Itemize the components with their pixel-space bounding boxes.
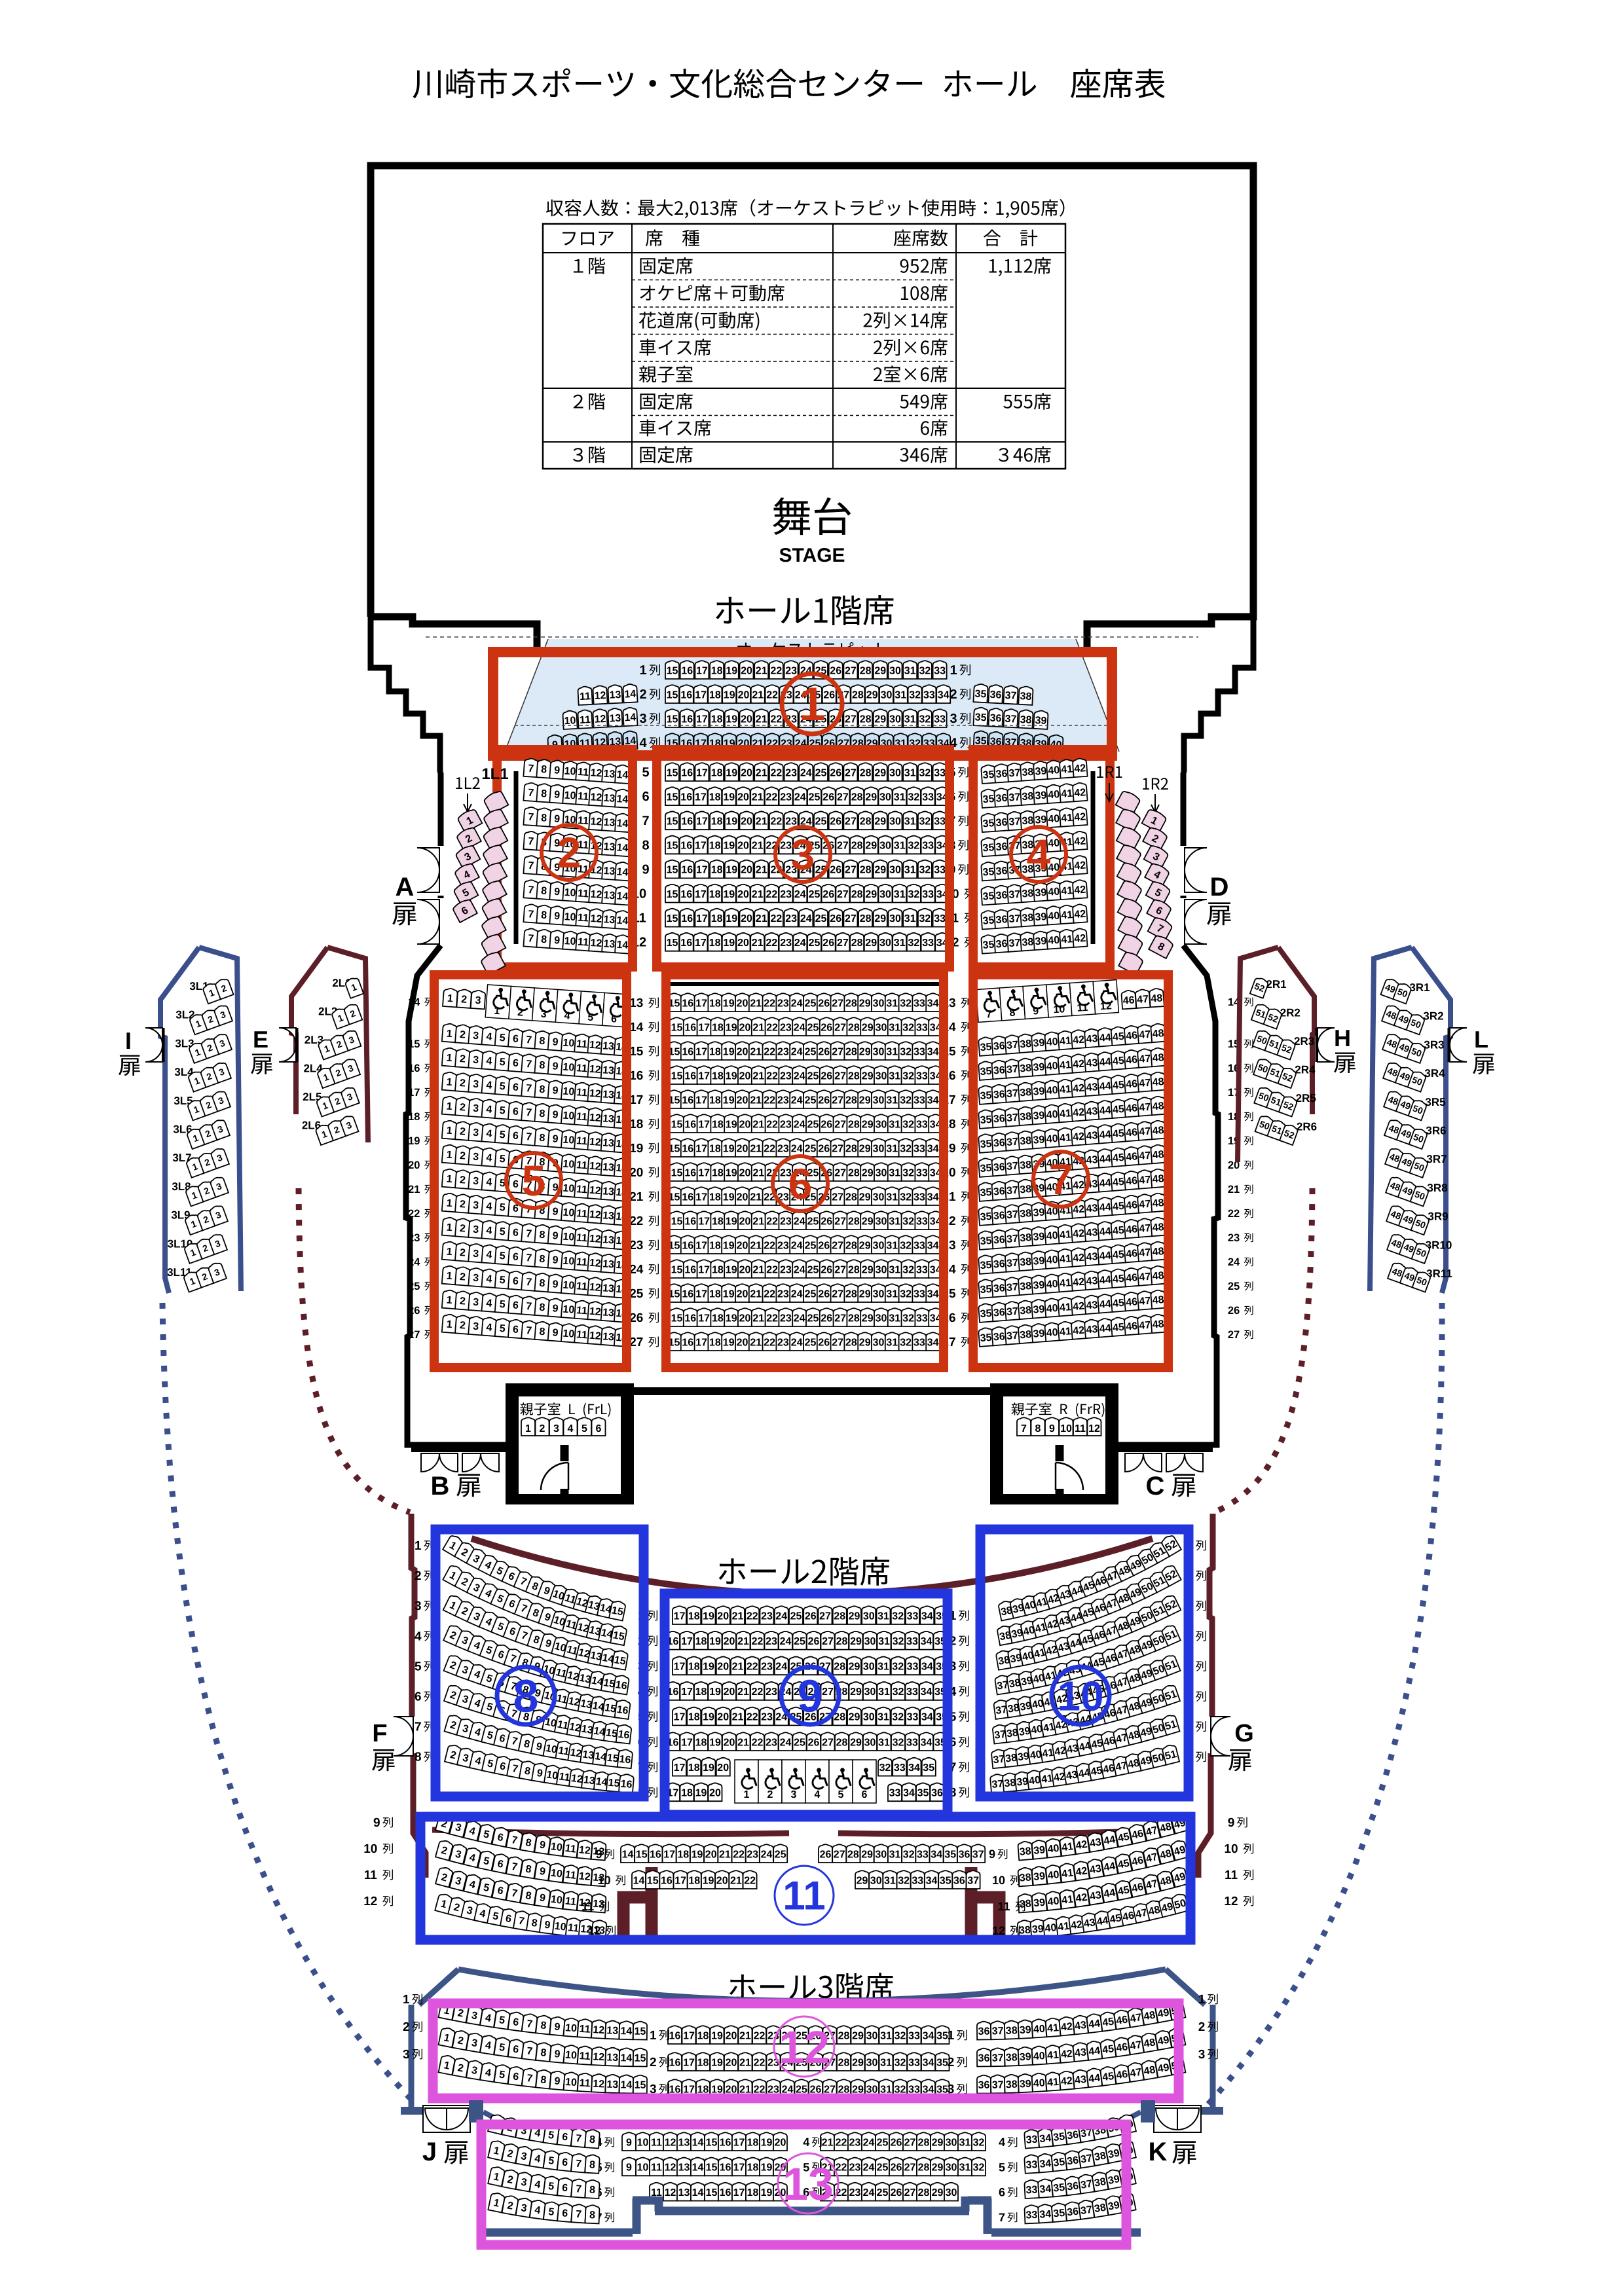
svg-text:26: 26: [818, 1288, 830, 1300]
svg-text:20: 20: [737, 1337, 748, 1348]
svg-text:14: 14: [633, 1875, 645, 1886]
svg-text:16: 16: [684, 1313, 696, 1324]
svg-text:33: 33: [916, 1167, 928, 1178]
svg-text:23: 23: [777, 1337, 789, 1348]
svg-text:15: 15: [706, 2162, 718, 2174]
svg-text:17: 17: [674, 1662, 686, 1673]
svg-text:25: 25: [408, 1281, 420, 1292]
svg-text:35: 35: [982, 890, 995, 902]
svg-text:6: 6: [512, 1300, 519, 1311]
svg-text:27: 27: [834, 1070, 846, 1082]
svg-text:36: 36: [993, 1210, 1005, 1222]
svg-text:29: 29: [852, 2057, 864, 2068]
svg-text:44: 44: [1103, 1834, 1116, 1847]
svg-text:44: 44: [1099, 1153, 1111, 1165]
svg-text:39: 39: [1033, 1110, 1045, 1121]
svg-text:26: 26: [821, 1216, 832, 1227]
svg-text:27: 27: [845, 714, 857, 725]
svg-text:33: 33: [913, 1095, 925, 1106]
svg-text:17: 17: [683, 2030, 695, 2041]
svg-text:11: 11: [567, 1922, 580, 1935]
svg-text:1: 1: [446, 1246, 452, 1258]
svg-text:9: 9: [554, 2022, 561, 2033]
svg-text:47: 47: [1129, 2039, 1142, 2052]
svg-text:2: 2: [459, 1247, 466, 1259]
svg-text:18: 18: [629, 1118, 643, 1131]
svg-text:18: 18: [711, 665, 723, 676]
svg-text:1: 1: [950, 663, 957, 678]
svg-text:42: 42: [1073, 1059, 1085, 1070]
svg-text:37: 37: [1008, 938, 1021, 949]
svg-text:19: 19: [723, 938, 735, 949]
svg-text:21: 21: [822, 2137, 834, 2148]
svg-text:18: 18: [709, 998, 721, 1009]
svg-text:1: 1: [446, 1173, 452, 1185]
svg-text:28: 28: [860, 714, 872, 725]
svg-text:34: 34: [938, 689, 950, 701]
svg-text:36: 36: [978, 2026, 990, 2037]
svg-text:28: 28: [845, 1337, 857, 1348]
svg-text:3: 3: [553, 1423, 559, 1434]
svg-text:32: 32: [902, 1264, 914, 1275]
svg-text:2: 2: [459, 1199, 466, 1211]
svg-text:29: 29: [862, 1022, 874, 1033]
svg-text:4: 4: [486, 1298, 492, 1309]
svg-text:23: 23: [747, 1849, 758, 1860]
svg-text:7: 7: [986, 1009, 992, 1021]
svg-text:9: 9: [552, 1036, 559, 1048]
svg-text:7: 7: [526, 1107, 532, 1119]
svg-text:2: 2: [403, 2020, 410, 2034]
svg-text:38: 38: [1019, 1846, 1031, 1857]
svg-text:2: 2: [459, 1053, 466, 1065]
svg-text:45: 45: [1101, 2043, 1115, 2056]
svg-text:17: 17: [695, 1095, 707, 1106]
svg-text:6: 6: [642, 790, 649, 804]
svg-text:22: 22: [744, 1875, 756, 1886]
svg-text:20: 20: [739, 1022, 751, 1033]
svg-text:32: 32: [919, 767, 931, 778]
svg-text:3: 3: [473, 1248, 479, 1260]
svg-text:23: 23: [780, 889, 792, 900]
svg-text:7: 7: [526, 1059, 532, 1070]
svg-text:33: 33: [912, 1875, 923, 1886]
svg-text:3: 3: [473, 1200, 479, 1212]
svg-text:24: 24: [794, 1313, 805, 1324]
svg-text:3: 3: [473, 1030, 479, 1042]
svg-text:15: 15: [647, 1875, 659, 1886]
svg-text:16: 16: [682, 1143, 693, 1154]
svg-text:41: 41: [1046, 2049, 1059, 2061]
svg-text:49: 49: [1156, 2007, 1170, 2020]
svg-text:44: 44: [1099, 1226, 1111, 1237]
svg-text:31: 31: [886, 1143, 898, 1154]
svg-text:2: 2: [639, 687, 646, 702]
svg-text:39: 39: [1033, 1870, 1046, 1883]
svg-text:36: 36: [989, 689, 1002, 701]
svg-text:9: 9: [554, 2049, 561, 2060]
svg-text:2: 2: [948, 2056, 955, 2069]
svg-text:42: 42: [1073, 1107, 1085, 1119]
svg-text:7: 7: [528, 860, 534, 872]
svg-text:15: 15: [408, 1038, 420, 1050]
svg-text:11: 11: [576, 1184, 587, 1195]
svg-text:16: 16: [680, 841, 692, 852]
svg-text:38: 38: [1020, 1063, 1032, 1074]
svg-text:9: 9: [554, 765, 561, 776]
svg-text:18: 18: [712, 1216, 724, 1227]
svg-text:22: 22: [766, 792, 778, 803]
svg-text:29: 29: [865, 792, 877, 803]
svg-text:13: 13: [678, 2162, 690, 2174]
svg-text:26: 26: [822, 889, 834, 900]
svg-text:33: 33: [907, 1712, 919, 1723]
svg-text:37: 37: [1008, 889, 1021, 901]
svg-text:18: 18: [695, 1686, 707, 1698]
svg-text:23: 23: [780, 1022, 792, 1033]
svg-text:12: 12: [589, 1185, 601, 1197]
svg-text:29: 29: [932, 2187, 944, 2198]
svg-text:11: 11: [651, 2162, 662, 2174]
svg-text:5: 5: [499, 1226, 506, 1238]
svg-text:26: 26: [1228, 1305, 1240, 1317]
svg-text:13: 13: [602, 1283, 615, 1294]
svg-text:17: 17: [674, 1875, 686, 1886]
svg-text:26: 26: [821, 1119, 832, 1130]
svg-text:26: 26: [818, 1095, 830, 1106]
svg-text:14: 14: [616, 890, 629, 902]
svg-text:26: 26: [808, 1737, 820, 1748]
svg-text:7: 7: [528, 909, 534, 920]
svg-text:7: 7: [1021, 1423, 1027, 1434]
svg-text:33: 33: [923, 689, 935, 701]
svg-text:27: 27: [822, 1686, 834, 1698]
svg-text:13: 13: [602, 1210, 615, 1222]
svg-text:22: 22: [629, 1214, 643, 1228]
svg-text:34: 34: [927, 1240, 939, 1251]
svg-text:37: 37: [1005, 714, 1017, 725]
svg-text:32: 32: [919, 714, 931, 725]
svg-text:23: 23: [1228, 1232, 1240, 1244]
svg-text:11: 11: [576, 1111, 587, 1123]
svg-text:45: 45: [1101, 2071, 1115, 2083]
svg-text:10: 10: [550, 1894, 563, 1906]
svg-text:33: 33: [934, 913, 946, 924]
svg-text:30: 30: [946, 2162, 957, 2174]
svg-text:32: 32: [900, 1192, 912, 1203]
svg-text:24: 24: [794, 792, 806, 803]
svg-text:45: 45: [1112, 1128, 1124, 1140]
svg-text:29: 29: [874, 767, 886, 778]
svg-text:45: 45: [1112, 1104, 1124, 1116]
svg-text:26: 26: [821, 1070, 832, 1082]
svg-text:10: 10: [564, 765, 576, 777]
svg-text:16: 16: [684, 1216, 696, 1227]
svg-text:38: 38: [1022, 767, 1034, 778]
svg-text:35: 35: [982, 818, 995, 829]
svg-text:20: 20: [741, 767, 752, 778]
svg-text:19: 19: [726, 1216, 737, 1227]
svg-text:27: 27: [832, 1143, 843, 1154]
svg-text:11: 11: [580, 714, 591, 726]
svg-text:6: 6: [561, 2182, 568, 2194]
svg-text:21: 21: [752, 938, 764, 949]
svg-text:36: 36: [993, 1283, 1005, 1294]
svg-text:17: 17: [695, 889, 707, 900]
svg-text:9: 9: [1228, 1816, 1235, 1830]
svg-text:15: 15: [671, 1070, 683, 1082]
svg-text:30: 30: [889, 816, 901, 828]
svg-text:J: J: [422, 2138, 437, 2166]
svg-text:16: 16: [684, 1167, 696, 1178]
svg-text:7: 7: [528, 763, 534, 775]
svg-text:19: 19: [723, 841, 735, 852]
svg-text:34: 34: [1039, 2209, 1052, 2221]
svg-text:26: 26: [823, 689, 835, 701]
svg-text:33: 33: [916, 1119, 928, 1130]
svg-text:43: 43: [1086, 1300, 1098, 1311]
svg-text:10: 10: [563, 1279, 575, 1291]
svg-text:31: 31: [894, 889, 906, 900]
svg-text:1: 1: [1198, 1993, 1206, 2007]
svg-text:17: 17: [695, 998, 707, 1009]
svg-text:13: 13: [603, 769, 616, 780]
svg-text:28: 28: [860, 913, 872, 924]
svg-text:22: 22: [766, 689, 778, 701]
svg-text:27: 27: [832, 998, 843, 1009]
svg-text:3: 3: [540, 1009, 547, 1021]
svg-text:21: 21: [756, 714, 767, 725]
svg-text:32: 32: [900, 1095, 912, 1106]
svg-text:24: 24: [791, 1143, 803, 1154]
svg-text:2: 2: [415, 1569, 422, 1583]
svg-text:30: 30: [873, 1337, 885, 1348]
svg-text:38: 38: [1022, 912, 1034, 924]
svg-text:36: 36: [993, 1089, 1005, 1101]
svg-text:25: 25: [805, 1143, 817, 1154]
svg-text:12: 12: [589, 1137, 601, 1148]
svg-text:39: 39: [1033, 1085, 1045, 1097]
svg-text:14: 14: [616, 842, 629, 854]
svg-text:29: 29: [850, 1737, 862, 1748]
svg-text:31: 31: [889, 1022, 900, 1033]
svg-text:39: 39: [1019, 2079, 1031, 2090]
svg-text:42: 42: [1073, 1034, 1085, 1046]
svg-text:33: 33: [917, 1849, 929, 1860]
svg-text:27: 27: [834, 1167, 846, 1178]
svg-text:17: 17: [698, 1070, 710, 1082]
svg-text:44: 44: [1088, 2073, 1101, 2085]
svg-text:16: 16: [682, 1240, 693, 1251]
svg-text:21: 21: [1228, 1184, 1240, 1195]
svg-text:16: 16: [620, 1778, 633, 1790]
svg-text:34: 34: [927, 1192, 939, 1203]
svg-text:29: 29: [866, 689, 878, 701]
svg-text:22: 22: [747, 1611, 758, 1622]
svg-text:19: 19: [695, 1788, 707, 1799]
svg-text:11: 11: [578, 912, 589, 924]
svg-text:10: 10: [992, 1874, 1005, 1887]
svg-text:2: 2: [459, 1175, 466, 1186]
svg-text:7: 7: [528, 836, 534, 848]
svg-text:31: 31: [959, 2137, 971, 2148]
svg-text:20: 20: [737, 889, 749, 900]
svg-text:27: 27: [834, 1119, 846, 1130]
svg-text:30: 30: [863, 1712, 875, 1723]
svg-text:16: 16: [619, 1754, 632, 1766]
svg-text:19: 19: [723, 1240, 735, 1251]
svg-text:6: 6: [415, 1690, 422, 1704]
svg-text:31: 31: [889, 1070, 900, 1082]
svg-text:28: 28: [845, 1095, 857, 1106]
svg-text:21: 21: [756, 767, 767, 778]
svg-text:48: 48: [1152, 1294, 1164, 1306]
svg-text:18: 18: [695, 1737, 707, 1748]
svg-text:32: 32: [909, 689, 921, 701]
svg-text:42: 42: [1074, 763, 1086, 774]
svg-text:41: 41: [1059, 1108, 1071, 1120]
svg-text:45: 45: [1112, 1322, 1124, 1334]
svg-text:21: 21: [752, 689, 764, 701]
svg-text:30: 30: [876, 1264, 887, 1275]
svg-text:22: 22: [771, 913, 783, 924]
svg-text:19: 19: [703, 1712, 714, 1723]
svg-text:9: 9: [552, 1327, 559, 1339]
svg-text:22: 22: [747, 1662, 758, 1673]
svg-text:26: 26: [830, 665, 841, 676]
svg-text:7: 7: [526, 1131, 532, 1143]
svg-text:24: 24: [629, 1263, 644, 1277]
svg-text:15: 15: [706, 2187, 718, 2198]
svg-text:24: 24: [794, 889, 806, 900]
svg-text:16: 16: [684, 1070, 696, 1082]
svg-text:22: 22: [752, 1686, 764, 1698]
svg-text:37: 37: [1008, 767, 1021, 779]
svg-text:35: 35: [917, 1788, 929, 1799]
svg-text:29: 29: [862, 1167, 874, 1178]
svg-text:13: 13: [602, 1113, 615, 1125]
svg-text:19: 19: [723, 792, 735, 803]
svg-text:11: 11: [576, 1063, 587, 1074]
svg-text:29: 29: [932, 2162, 944, 2174]
svg-text:48: 48: [1152, 1197, 1164, 1209]
svg-text:10: 10: [563, 1037, 575, 1049]
svg-text:6: 6: [512, 1082, 519, 1093]
svg-text:26: 26: [822, 938, 834, 949]
svg-text:37: 37: [1006, 1233, 1019, 1245]
svg-text:29: 29: [865, 938, 877, 949]
svg-text:45: 45: [1116, 1884, 1130, 1897]
svg-text:12: 12: [594, 690, 606, 702]
svg-text:10: 10: [1053, 1004, 1065, 1015]
svg-text:47: 47: [1139, 1320, 1151, 1332]
svg-text:43: 43: [1086, 1324, 1098, 1336]
svg-text:9: 9: [626, 2137, 632, 2148]
svg-text:36: 36: [995, 866, 1008, 877]
svg-text:1L1: 1L1: [481, 765, 508, 783]
svg-text:31: 31: [886, 1095, 898, 1106]
svg-text:21: 21: [750, 1240, 762, 1251]
svg-text:17: 17: [695, 841, 707, 852]
svg-text:30: 30: [876, 1119, 887, 1130]
svg-text:17: 17: [696, 865, 708, 876]
svg-text:4: 4: [486, 1104, 492, 1116]
svg-text:D: D: [1210, 873, 1229, 902]
svg-text:23: 23: [766, 1636, 777, 1647]
svg-text:39: 39: [1033, 1844, 1046, 1857]
svg-text:11: 11: [564, 1869, 577, 1882]
svg-text:14: 14: [620, 2052, 632, 2064]
svg-text:30: 30: [873, 1046, 885, 1057]
svg-text:4: 4: [486, 1176, 492, 1188]
svg-text:2: 2: [459, 1296, 466, 1307]
svg-text:6: 6: [512, 1275, 519, 1287]
svg-text:36: 36: [993, 1331, 1005, 1343]
svg-text:35: 35: [980, 1139, 992, 1150]
svg-text:20: 20: [629, 1166, 643, 1180]
svg-text:31: 31: [894, 938, 906, 949]
svg-text:18: 18: [709, 1240, 721, 1251]
svg-text:17: 17: [695, 1192, 707, 1203]
svg-text:3: 3: [473, 1127, 479, 1139]
svg-text:10: 10: [363, 1842, 377, 1856]
svg-text:30: 30: [873, 1192, 885, 1203]
svg-text:39: 39: [1033, 1207, 1045, 1218]
svg-text:30: 30: [876, 1167, 887, 1178]
svg-text:12: 12: [590, 767, 602, 779]
svg-text:9: 9: [1049, 1423, 1055, 1434]
svg-text:19: 19: [709, 1636, 721, 1647]
svg-text:14: 14: [595, 1776, 608, 1789]
svg-text:6: 6: [596, 1423, 602, 1434]
svg-text:15: 15: [667, 865, 678, 876]
svg-text:23: 23: [777, 998, 789, 1009]
svg-text:12: 12: [779, 2022, 830, 2073]
svg-text:15: 15: [671, 1119, 683, 1130]
svg-text:4: 4: [486, 1273, 492, 1285]
svg-text:47: 47: [1139, 1199, 1151, 1211]
svg-text:32: 32: [900, 1240, 912, 1251]
svg-text:13: 13: [783, 2159, 834, 2210]
svg-text:33: 33: [916, 1022, 928, 1033]
svg-text:38: 38: [1006, 2052, 1018, 2064]
svg-text:10: 10: [550, 1841, 563, 1853]
svg-text:31: 31: [884, 1875, 896, 1886]
svg-text:37: 37: [1006, 1112, 1019, 1124]
svg-text:30: 30: [889, 665, 901, 676]
svg-text:22: 22: [764, 1288, 775, 1300]
svg-text:20: 20: [739, 1264, 751, 1275]
svg-text:8: 8: [589, 2210, 596, 2221]
svg-text:36: 36: [993, 1234, 1005, 1246]
svg-text:9: 9: [552, 1061, 559, 1072]
svg-text:20: 20: [717, 1662, 729, 1673]
svg-text:4: 4: [486, 1055, 492, 1067]
svg-text:25: 25: [877, 2137, 889, 2148]
svg-text:10: 10: [550, 1867, 563, 1880]
svg-text:26: 26: [818, 998, 830, 1009]
svg-text:2: 2: [517, 1007, 524, 1019]
svg-text:38: 38: [1019, 1898, 1031, 1910]
svg-text:5: 5: [499, 1032, 506, 1044]
svg-text:19: 19: [723, 889, 735, 900]
svg-text:42: 42: [1074, 811, 1086, 823]
svg-text:19: 19: [724, 689, 735, 701]
svg-text:28: 28: [918, 2187, 930, 2198]
svg-text:7: 7: [526, 1325, 532, 1337]
svg-text:3: 3: [1198, 2048, 1206, 2062]
svg-text:35: 35: [923, 1762, 934, 1774]
